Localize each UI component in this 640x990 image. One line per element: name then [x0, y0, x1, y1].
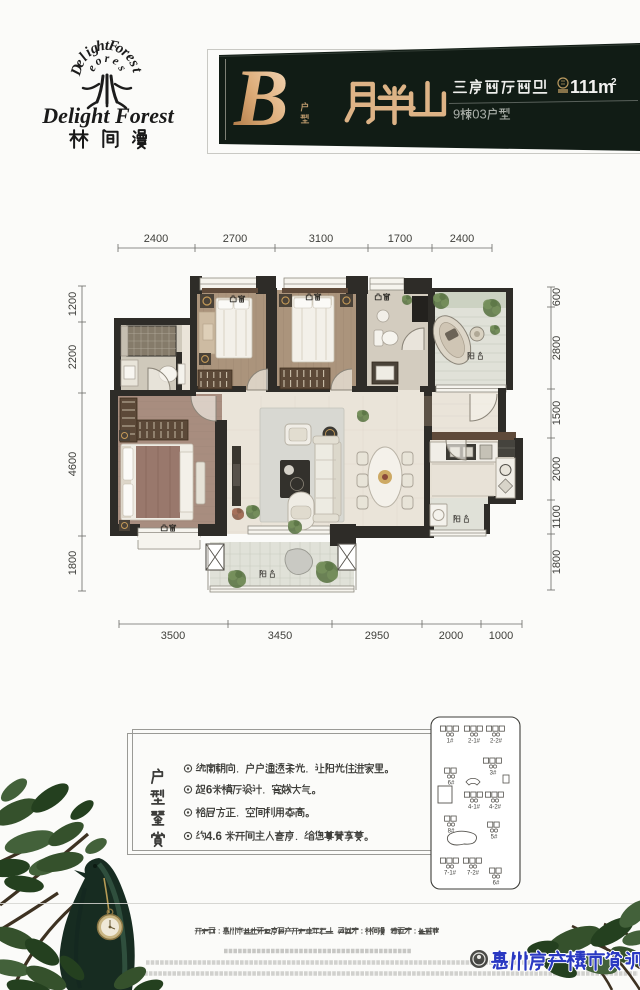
svg-text:3100: 3100: [309, 233, 333, 245]
svg-text:2400: 2400: [450, 233, 474, 245]
svg-text:B: B: [233, 52, 289, 143]
svg-text:2200: 2200: [67, 345, 79, 369]
svg-text:1800: 1800: [67, 551, 79, 575]
svg-text:2700: 2700: [223, 233, 247, 245]
svg-text:2: 2: [611, 77, 617, 88]
svg-text:6: 6: [206, 785, 212, 797]
svg-text:2800: 2800: [551, 336, 563, 360]
svg-text:4-2#: 4-2#: [489, 805, 502, 811]
svg-text:1800: 1800: [551, 550, 563, 574]
svg-text:600: 600: [551, 288, 563, 306]
svg-text:1#: 1#: [447, 739, 454, 745]
svg-text:111m: 111m: [570, 77, 614, 97]
svg-text:3#: 3#: [490, 771, 497, 777]
svg-text:1700: 1700: [388, 233, 412, 245]
svg-text:2-2#: 2-2#: [490, 739, 503, 745]
svg-text:2000: 2000: [551, 457, 563, 481]
svg-text:2400: 2400: [144, 233, 168, 245]
svg-text:3450: 3450: [268, 630, 292, 642]
svg-text:Delight Forest: Delight Forest: [41, 103, 174, 128]
svg-text:5#: 5#: [491, 835, 498, 841]
svg-text:1500: 1500: [551, 401, 563, 425]
svg-text:7-1#: 7-1#: [444, 871, 457, 877]
svg-text:3500: 3500: [161, 630, 185, 642]
svg-text:4-1#: 4-1#: [468, 805, 481, 811]
svg-text:2-1#: 2-1#: [468, 739, 481, 745]
svg-text:03: 03: [472, 107, 486, 122]
svg-text:7-2#: 7-2#: [467, 871, 480, 877]
svg-text:4600: 4600: [67, 452, 79, 476]
svg-text:2950: 2950: [365, 630, 389, 642]
svg-text:2000: 2000: [439, 630, 463, 642]
svg-text:1200: 1200: [67, 292, 79, 316]
svg-text:1100: 1100: [551, 505, 563, 529]
svg-text:9: 9: [453, 107, 460, 122]
svg-text:6#: 6#: [493, 881, 500, 887]
svg-text:r: r: [105, 51, 110, 65]
svg-text:4.6: 4.6: [206, 831, 222, 843]
svg-text:1000: 1000: [489, 630, 513, 642]
